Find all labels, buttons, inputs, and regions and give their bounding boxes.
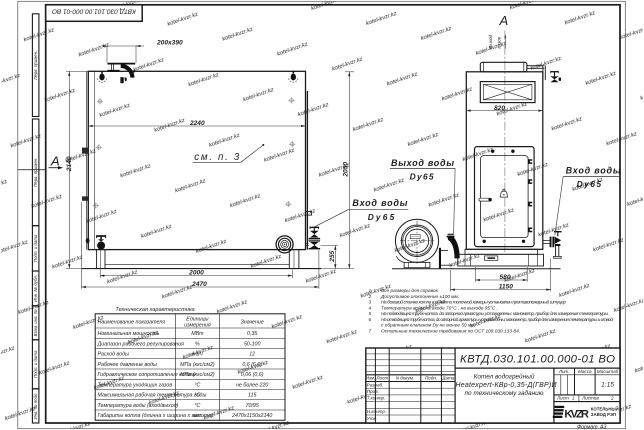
svg-text:измерения: измерения: [184, 322, 211, 328]
svg-text:Вход воды: Вход воды: [352, 198, 407, 208]
svg-text:Лист: Лист: [375, 376, 388, 381]
svg-text:Расход воды: Расход воды: [98, 352, 129, 358]
svg-text:ЗАВОД РЭП: ЗАВОД РЭП: [591, 412, 616, 417]
svg-text:Т.контр.: Т.контр.: [367, 396, 386, 401]
svg-text:На отводящей трубе котла, до з: На отводящей трубе котла, до запорной ар…: [381, 316, 613, 323]
svg-text:А: А: [499, 13, 509, 28]
svg-text:Максимальная рабочая температу: Максимальная рабочая температура воды: [98, 393, 207, 399]
svg-text:6: 6: [369, 317, 372, 323]
svg-text:°С: °С: [194, 403, 200, 409]
svg-text:см. п. 3: см. п. 3: [194, 152, 240, 163]
svg-text:не более 220: не более 220: [236, 382, 268, 388]
svg-text:Дата: Дата: [441, 376, 455, 381]
svg-text:N докум.: N докум.: [396, 376, 415, 381]
svg-text:Котел водогрейный: Котел водогрейный: [474, 373, 535, 381]
svg-text:2240: 2240: [189, 120, 205, 127]
svg-text:1:15: 1:15: [601, 382, 614, 389]
svg-text:2: 2: [368, 294, 372, 300]
svg-text:2050: 2050: [342, 162, 349, 178]
svg-text:м3/ч: м3/ч: [192, 352, 203, 358]
svg-text:Н.контр.: Н.контр.: [367, 409, 386, 414]
svg-text:2470х1150х2140: 2470х1150х2140: [231, 413, 272, 419]
svg-text:А: А: [50, 153, 60, 168]
svg-text:70/95: 70/95: [246, 403, 259, 409]
svg-text:мм: мм: [194, 413, 202, 419]
svg-text:КВТД.030.101.00.000-01 ВО: КВТД.030.101.00.000-01 ВО: [52, 8, 136, 15]
svg-text:Номинальная мощность: Номинальная мощность: [98, 331, 160, 337]
svg-text:°С: °С: [194, 393, 200, 399]
svg-text:Температура уходящих газов: Температура уходящих газов: [98, 382, 173, 388]
svg-text:газов: газов: [496, 36, 501, 48]
svg-text:Подп. и дата: Подп. и дата: [33, 350, 38, 378]
svg-text:Инв. № дубл.: Инв. № дубл.: [33, 275, 38, 302]
svg-text:МПа (кгс/см2): МПа (кгс/см2): [180, 362, 215, 368]
svg-text:Диапазон рабочего регулировани: Диапазон рабочего регулирования: [97, 341, 185, 347]
svg-text:Перв. примен.: Перв. примен.: [33, 51, 38, 80]
svg-text:1: 1: [369, 288, 372, 294]
svg-text:580: 580: [499, 274, 510, 281]
svg-text:200х390: 200х390: [156, 39, 183, 46]
svg-text:по техническому заданию: по техническому заданию: [465, 389, 544, 397]
svg-text:Разраб.: Разраб.: [367, 382, 384, 387]
svg-text:Формат: Формат: [577, 425, 598, 430]
svg-text:КОТЕЛЬНЫЙ: КОТЕЛЬНЫЙ: [591, 407, 619, 412]
svg-text:Рабочее давление воды: Рабочее давление воды: [98, 362, 157, 368]
svg-text:2000: 2000: [188, 270, 204, 277]
svg-text:5: 5: [369, 311, 372, 317]
svg-text:7: 7: [369, 328, 372, 334]
svg-text:Масса: Масса: [578, 369, 592, 374]
svg-text:Подп.: Подп.: [425, 376, 437, 381]
svg-text:2: 2: [610, 396, 614, 401]
svg-text:Значение: Значение: [241, 319, 264, 325]
svg-text:Подп. и дата: Подп. и дата: [33, 234, 38, 262]
svg-text:Масштаб: Масштаб: [597, 369, 619, 374]
svg-text:Температура воды (вход/выход): Температура воды (вход/выход): [98, 403, 179, 409]
svg-text:820: 820: [494, 105, 505, 112]
svg-text:Техническая характеристика: Техническая характеристика: [115, 307, 194, 313]
svg-text:%: %: [195, 341, 200, 347]
svg-text:Пров.: Пров.: [367, 389, 379, 394]
svg-text:На подводящей трубе котла, до: На подводящей трубе котла, до запорной а…: [381, 310, 609, 317]
svg-text:2140: 2140: [66, 156, 73, 172]
svg-text:На боковой стенке котла в обла: На боковой стенке котла в области топочн…: [381, 299, 566, 306]
svg-text:1150: 1150: [499, 284, 514, 291]
svg-text:Heatexpert-КВр-0,35-Д(ГВР)И: Heatexpert-КВр-0,35-Д(ГВР)И: [456, 382, 558, 389]
svg-text:Лит.: Лит.: [558, 369, 570, 374]
svg-text:Лист: Лист: [556, 396, 569, 401]
svg-text:0,6 (6,0): 0,6 (6,0): [242, 362, 262, 368]
svg-text:0,06 (0,6): 0,06 (0,6): [241, 372, 264, 378]
svg-text:115: 115: [248, 393, 256, 399]
svg-text:°С: °С: [194, 382, 200, 388]
svg-text:3: 3: [369, 300, 372, 306]
svg-text:Все размеры для справок: Все размеры для справок: [381, 288, 439, 294]
svg-text:0,35: 0,35: [247, 331, 257, 337]
svg-text:Вход воды: Вход воды: [566, 165, 621, 175]
svg-text:255: 255: [329, 250, 336, 262]
svg-text:Остальные технические требован: Остальные технические требования по ОСТ …: [381, 328, 520, 334]
svg-text:с обратным клапаном Dу не мен: с обратным клапаном Dу не менее 50 мм.: [381, 323, 476, 329]
svg-text:Выход воды: Выход воды: [391, 158, 454, 168]
svg-text:Инв. № подл.: Инв. № подл.: [33, 392, 38, 419]
svg-text:Листов: Листов: [581, 396, 599, 401]
svg-text:2470: 2470: [191, 281, 207, 288]
svg-text:4: 4: [369, 305, 372, 311]
svg-text:Взам. инв. №: Взам. инв. №: [33, 309, 38, 336]
svg-text:50-100: 50-100: [244, 341, 261, 347]
svg-text:Изм.: Изм.: [366, 376, 376, 381]
svg-text:Температура воды на входе 70°: Температура воды на входе 70°С , на выхо…: [381, 305, 498, 311]
svg-text:КВТД.030.101.00.000-01 ВО: КВТД.030.101.00.000-01 ВО: [460, 353, 615, 365]
svg-text:Перв. примен.: Перв. примен.: [33, 158, 38, 187]
svg-text:Утв.: Утв.: [367, 416, 377, 421]
svg-text:KVZR: KVZR: [564, 408, 589, 420]
svg-text:МПа (кгс/см2): МПа (кгс/см2): [180, 372, 215, 378]
svg-text:Допустимое отклонение ±100 мм: Допустимое отклонение ±100 мм.: [380, 294, 459, 300]
svg-text:А3: А3: [599, 425, 606, 430]
svg-text:Наименование показателя: Наименование показателя: [98, 319, 166, 325]
svg-text:МВт: МВт: [191, 331, 204, 337]
svg-text:Выход: Выход: [488, 34, 493, 48]
svg-text:1: 1: [572, 396, 575, 401]
svg-text:12: 12: [249, 352, 255, 358]
